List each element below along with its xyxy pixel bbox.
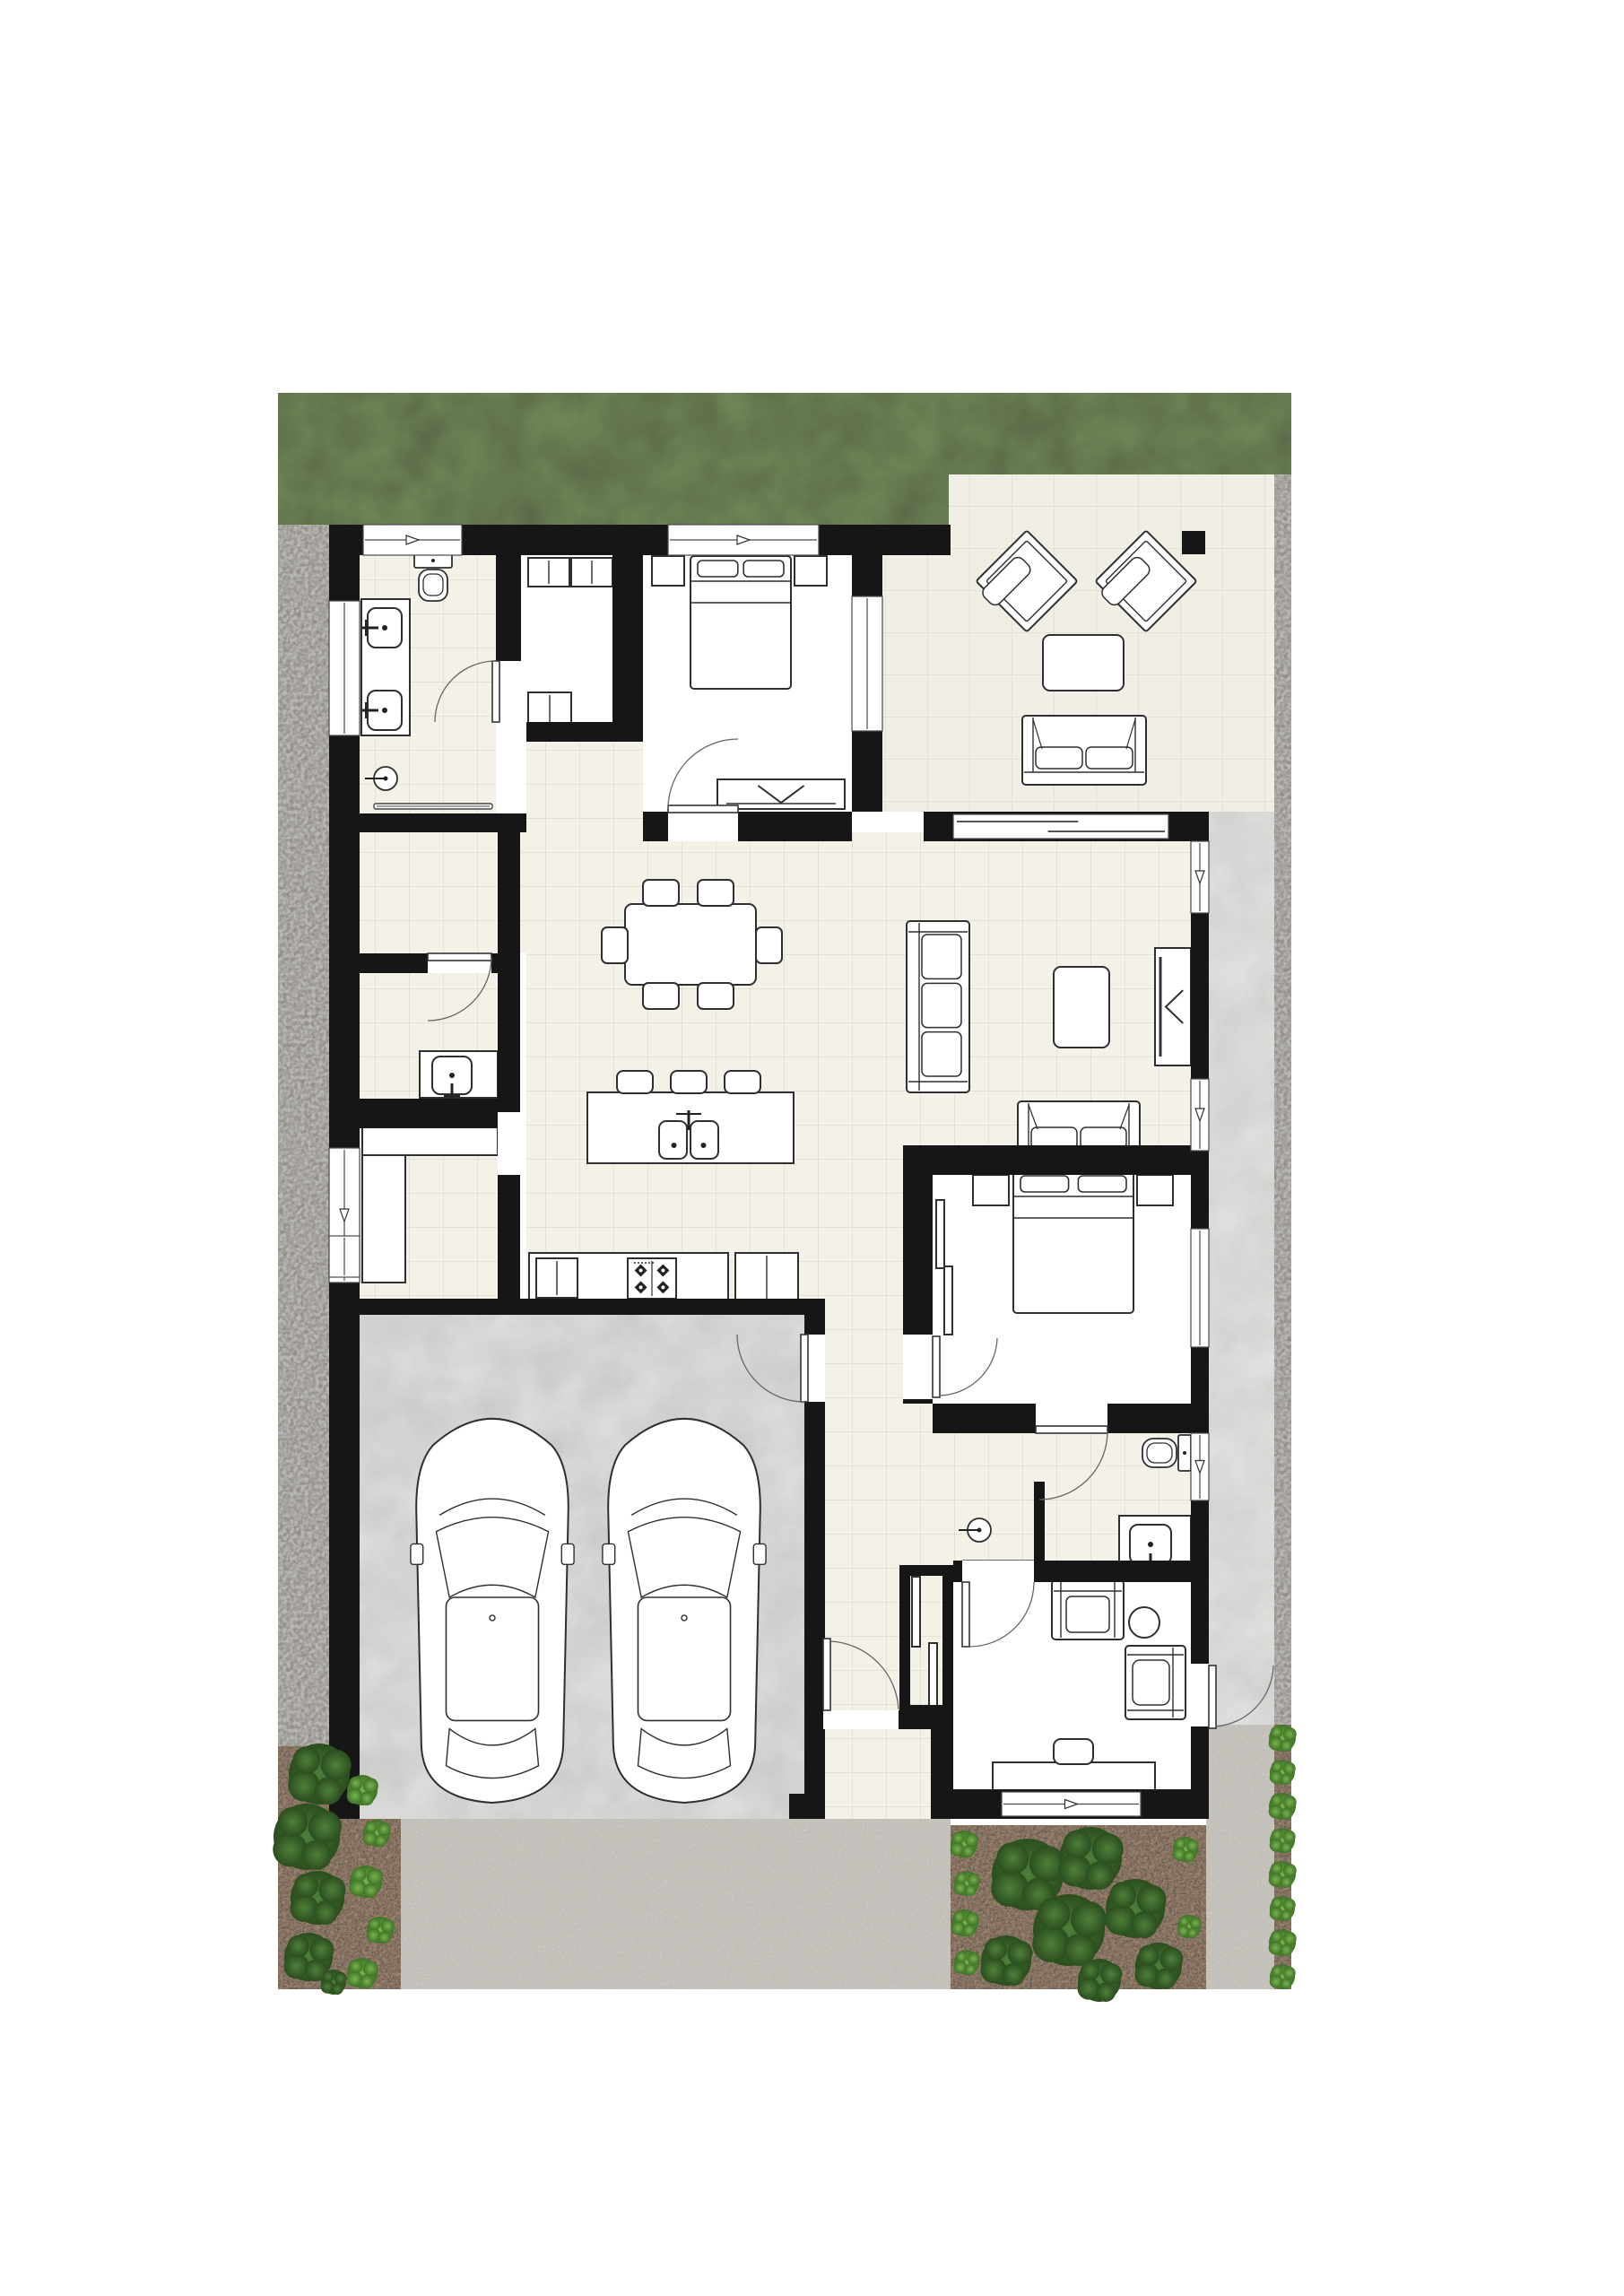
- wall-linen-bottom: [899, 1705, 953, 1716]
- wall-linen-right: [942, 1565, 953, 1716]
- dining-chair-3: [643, 983, 679, 1009]
- window-left-ensuite: [329, 601, 360, 735]
- dining-table: [625, 904, 756, 985]
- laundry-counter-side: [362, 1155, 405, 1283]
- master-bed: [690, 556, 791, 689]
- ensuite-sink-2: [362, 691, 402, 730]
- gap-front-door: [823, 1710, 899, 1729]
- bed2-nightstand-left: [973, 1175, 1009, 1205]
- dining-chair-5: [602, 927, 628, 963]
- walkway-right: [1206, 1725, 1274, 1989]
- gravel-strip-left: [278, 525, 329, 1746]
- window-living-2: [1191, 1079, 1209, 1151]
- ensuite-shower-rail: [374, 804, 492, 809]
- wall-powder-bottom: [360, 1099, 520, 1128]
- window-top-master: [668, 525, 819, 555]
- concrete-path-right: [1209, 812, 1274, 1725]
- gravel-strip-right: [1274, 474, 1291, 1725]
- bar-stool-2: [671, 1071, 707, 1093]
- robe-shelf-1: [528, 558, 569, 587]
- patio-loveseat: [1022, 716, 1146, 785]
- gap-office-door: [962, 1561, 1034, 1582]
- bed2: [1013, 1171, 1133, 1313]
- bush: [1270, 1964, 1296, 1989]
- dining-chair-1: [643, 880, 679, 906]
- driveway: [401, 1819, 951, 1989]
- window-bed2: [1191, 1229, 1209, 1347]
- bush: [1270, 1760, 1296, 1785]
- tv-unit: [1155, 948, 1191, 1065]
- bush: [1269, 1793, 1297, 1820]
- gap-office-ext-door: [1191, 1664, 1209, 1726]
- linen-slider-2: [929, 1643, 937, 1713]
- wall-bed2-top: [903, 1145, 1209, 1175]
- wall-linen-top: [899, 1565, 953, 1576]
- dining-chair-4: [698, 983, 734, 1009]
- lawn-strip-left: [278, 393, 949, 525]
- dining-chair-6: [756, 927, 782, 963]
- bush: [1270, 1896, 1296, 1921]
- living-sofa: [907, 921, 969, 1092]
- wall-garage-top: [360, 1299, 825, 1315]
- window-bath2: [1191, 1433, 1209, 1500]
- bar-stool-1: [617, 1071, 653, 1093]
- master-nightstand-right: [795, 556, 827, 586]
- wall-linen-left: [899, 1565, 910, 1716]
- wall-ensuite-bottom: [360, 813, 526, 832]
- floor-plan: [0, 0, 1624, 2296]
- bush: [1269, 1861, 1297, 1888]
- window-top-ensuite: [363, 525, 462, 555]
- window-living-1: [1191, 841, 1209, 913]
- office-side-table: [1129, 1607, 1159, 1638]
- wall-garage-stub: [789, 1794, 825, 1819]
- linen-slider-1: [912, 1577, 920, 1647]
- ensuite-toilet: [414, 554, 452, 601]
- office-armchair: [1052, 1580, 1124, 1639]
- patio-column: [1182, 531, 1205, 554]
- car-2: [603, 1419, 766, 1803]
- bush: [1270, 1828, 1296, 1853]
- master-nightstand-left: [652, 556, 684, 586]
- wall-porch-right: [931, 1729, 953, 1819]
- bath2-toilet: [1142, 1435, 1191, 1471]
- bar-stool-3: [725, 1071, 760, 1093]
- bush: [1078, 1959, 1123, 2002]
- wall-mid-vertical: [498, 832, 520, 1305]
- bed2-nightstand-right: [1137, 1175, 1173, 1205]
- gap-laundry: [498, 1112, 520, 1175]
- ensuite-sink-1: [362, 608, 402, 648]
- master-tv-dresser: [717, 779, 845, 809]
- robe-shelf-2: [571, 558, 612, 587]
- dining-chair-2: [698, 880, 734, 906]
- bed2-robe-door-1: [936, 1200, 944, 1268]
- car-1: [411, 1419, 574, 1803]
- floor-patio-b: [949, 474, 1274, 526]
- office-lounge-chair: [1125, 1646, 1185, 1719]
- window-master-patio: [852, 596, 882, 731]
- wall-robe-master: [612, 555, 643, 722]
- oven: [536, 1258, 578, 1298]
- lawn-strip-right: [949, 393, 1291, 474]
- bush: [1269, 1725, 1297, 1752]
- living-coffee-table: [1054, 967, 1109, 1048]
- gap-master-door: [668, 812, 738, 841]
- cooktop: [628, 1258, 676, 1299]
- bed2-robe-door-2: [944, 1266, 952, 1335]
- floor-hall-a: [526, 742, 643, 832]
- page: [0, 0, 1624, 2296]
- bush: [1269, 1929, 1297, 1956]
- patio-coffee-table: [1043, 635, 1124, 691]
- office-desk-chair: [1054, 1739, 1093, 1764]
- powder-sink: [432, 1057, 472, 1100]
- wall-robe-bottom: [526, 722, 643, 742]
- gap-bed2-door: [903, 1335, 933, 1399]
- window-office: [1002, 1792, 1141, 1816]
- slider-patio: [953, 814, 1168, 839]
- window-left-garage: [329, 1236, 360, 1277]
- bush: [321, 1970, 347, 1995]
